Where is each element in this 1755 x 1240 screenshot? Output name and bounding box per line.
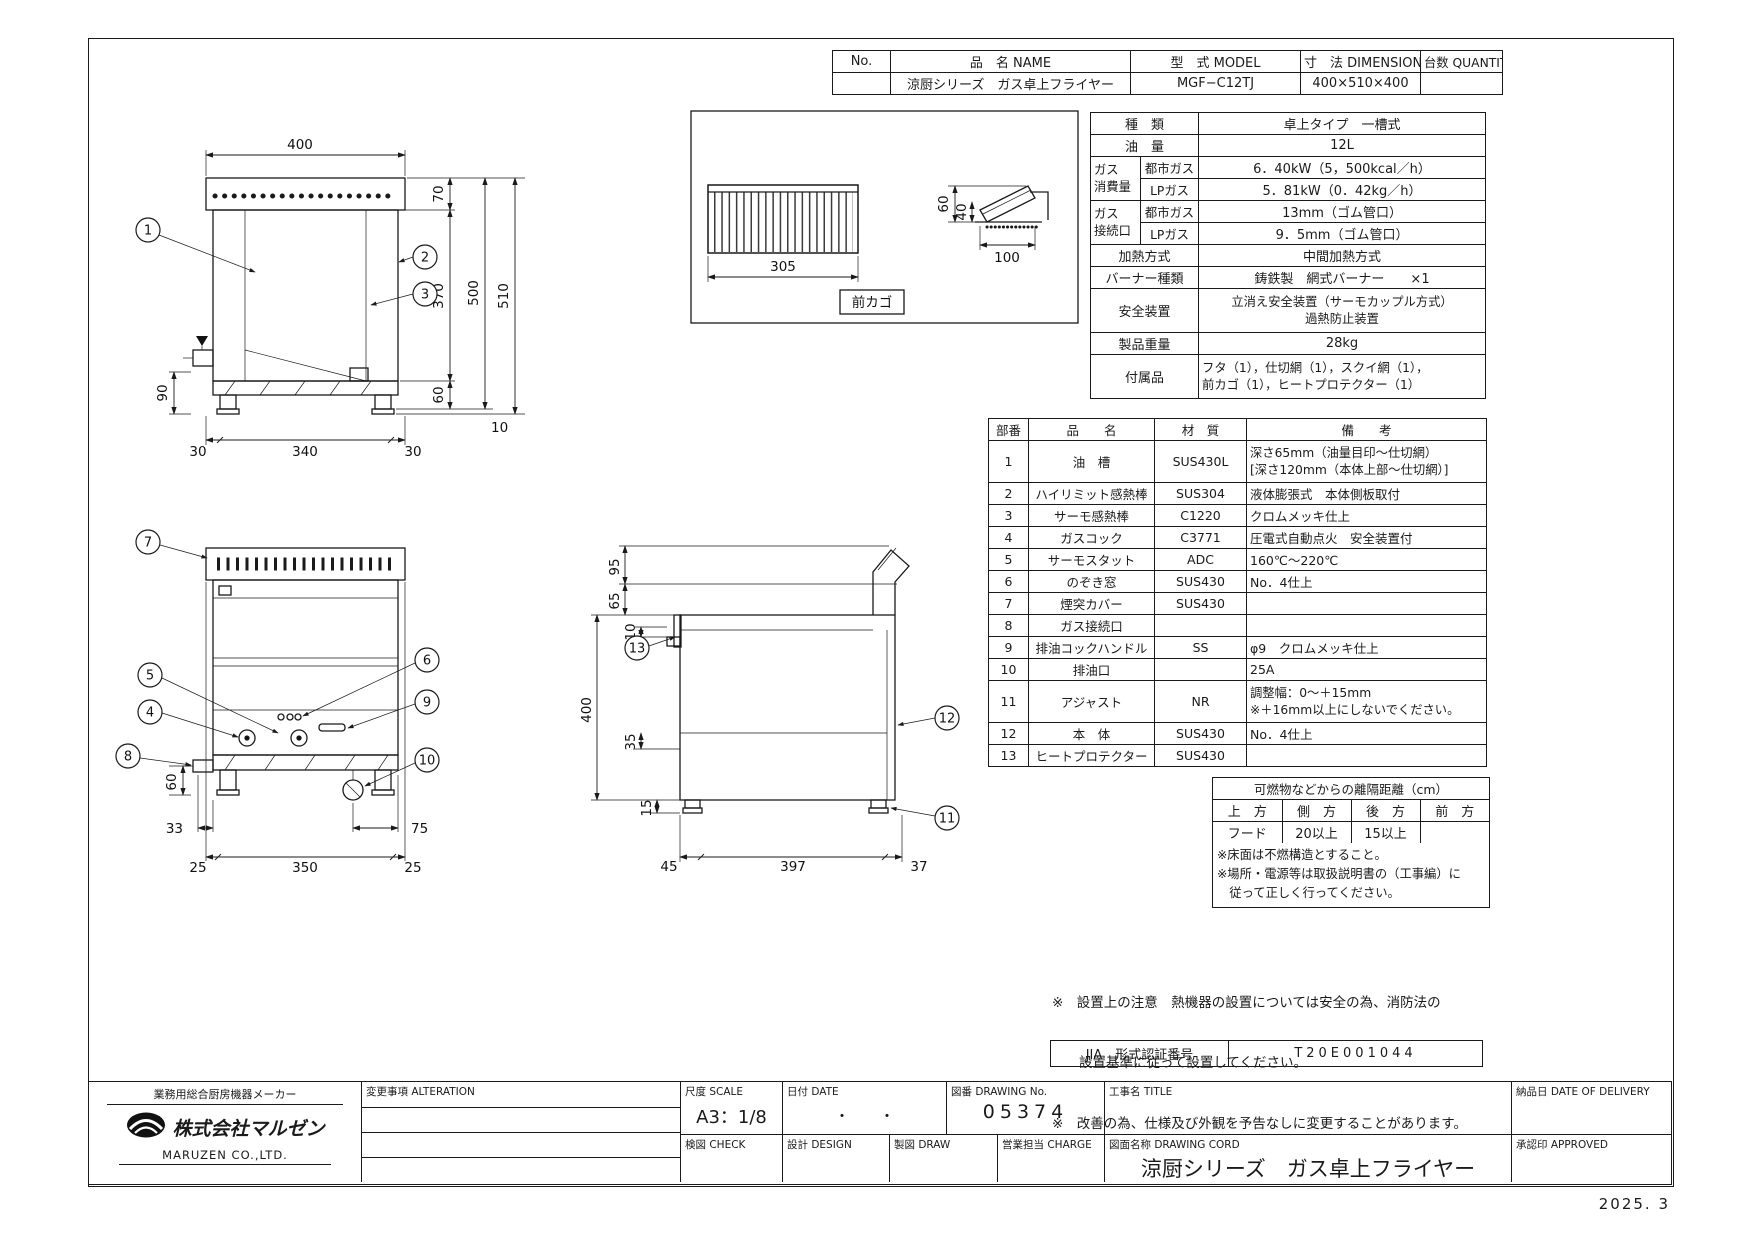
header-dim-label: 寸 法 DIMENSION bbox=[1301, 51, 1421, 73]
parts-no-header: 部番 bbox=[989, 419, 1029, 441]
parts-row: 8ガス接続口 bbox=[989, 615, 1487, 637]
date-label: 日付 DATE bbox=[783, 1082, 946, 1099]
project-title-cell: 工事名 TITLE bbox=[1104, 1082, 1511, 1134]
fryer-side-outline bbox=[667, 548, 909, 813]
spec-burner: 鋳鉄製 網式バーナー ×1 bbox=[1199, 267, 1486, 289]
side-extension-lines bbox=[591, 546, 902, 862]
dim-45: 45 bbox=[660, 859, 677, 875]
spec-lp-gas-label2: LPガス bbox=[1141, 223, 1199, 245]
drawing-sheet: No. 品 名 NAME 型 式 MODEL 寸 法 DIMENSION 台数 … bbox=[0, 0, 1755, 1240]
header-name-label: 品 名 NAME bbox=[891, 51, 1131, 73]
fryer-front2-details bbox=[183, 598, 398, 780]
dim-30-left: 30 bbox=[189, 444, 206, 460]
date-value: ・ ・ bbox=[783, 1105, 946, 1126]
spec-city-gas-label: 都市ガス bbox=[1141, 157, 1199, 179]
company-name: 株式会社マルゼン bbox=[172, 1114, 324, 1141]
draw-cell: 製図 DRAW bbox=[889, 1134, 997, 1182]
header-qty-value bbox=[1421, 73, 1503, 95]
clearance-side-value: 20以上 bbox=[1282, 822, 1351, 844]
parts-row: 2ハイリミット感熱棒SUS304液体膨張式 本体側板取付 bbox=[989, 483, 1487, 505]
spec-accessories: フタ（1），仕切網（1），スクイ網（1），前カゴ（1），ヒートプロテクター（1） bbox=[1199, 355, 1486, 399]
spec-consumption-label: ガス消費量 bbox=[1091, 157, 1141, 201]
parts-name-header: 品 名 bbox=[1029, 419, 1155, 441]
drawing-name-label: 図面名称 DRAWING CORD bbox=[1105, 1135, 1511, 1152]
project-title-label: 工事名 TITLE bbox=[1105, 1082, 1511, 1099]
dim-65: 65 bbox=[607, 592, 623, 609]
clearance-front-header: 前 方 bbox=[1420, 800, 1489, 822]
dim-60-left: 60 bbox=[164, 773, 180, 790]
header-qty-label: 台数 QUANTITY bbox=[1421, 51, 1503, 73]
parts-row: 3サーモ感熱棒C1220クロムメッキ仕上 bbox=[989, 505, 1487, 527]
front-view-drawing: 400 70 370 60 500 510 10 90 30 340 30 1 … bbox=[95, 50, 565, 470]
dim-305: 305 bbox=[770, 259, 796, 275]
dim-70: 70 bbox=[431, 185, 447, 202]
spec-city-gas-label2: 都市ガス bbox=[1141, 201, 1199, 223]
title-block: 業務用総合厨房機器メーカー 株式会社マルゼン MARUZEN CO.,LTD. … bbox=[88, 1081, 1672, 1185]
maruzen-logo-icon bbox=[125, 1110, 167, 1144]
check-cell: 検図 CHECK bbox=[680, 1134, 782, 1182]
spec-oil-label: 油 量 bbox=[1091, 135, 1199, 157]
spec-safety-label: 安全装置 bbox=[1091, 289, 1199, 333]
jia-value: T20E001044 bbox=[1229, 1041, 1483, 1067]
drawing-no-cell: 図番 DRAWING No. 05374 bbox=[946, 1082, 1104, 1134]
basket-dimension-lines bbox=[708, 186, 1035, 277]
parts-row: 1油 槽SUS430L 深さ65mm（油量目印～仕切網）[深さ120mm（本体上… bbox=[989, 441, 1487, 483]
callout-9: 9 bbox=[423, 696, 431, 711]
delivery-cell: 納品日 DATE OF DELIVERY bbox=[1511, 1082, 1671, 1134]
dim-35: 35 bbox=[623, 733, 639, 750]
spec-burner-label: バーナー種類 bbox=[1091, 267, 1199, 289]
dim-60: 60 bbox=[431, 386, 447, 403]
header-table: No. 品 名 NAME 型 式 MODEL 寸 法 DIMENSION 台数 … bbox=[832, 50, 1503, 95]
clearance-title: 可燃物などからの離隔距離（cm） bbox=[1213, 778, 1489, 800]
header-model-label: 型 式 MODEL bbox=[1131, 51, 1301, 73]
clearance-top-value: フード bbox=[1213, 822, 1282, 844]
dim-400: 400 bbox=[287, 137, 313, 153]
fryer-front-details bbox=[183, 210, 371, 395]
spec-weight: 28kg bbox=[1199, 333, 1486, 355]
spec-heating-label: 加熱方式 bbox=[1091, 245, 1199, 267]
parts-material-header: 材 質 bbox=[1155, 419, 1247, 441]
drawing-name-value: 涼厨シリーズ ガス卓上フライヤー bbox=[1105, 1153, 1511, 1183]
dim-340: 340 bbox=[292, 444, 318, 460]
fryer-front2-outline bbox=[193, 548, 405, 795]
spec-lp-gas-label: LPガス bbox=[1141, 179, 1199, 201]
callout-4: 4 bbox=[146, 706, 154, 721]
dim-40-basket: 40 bbox=[954, 203, 970, 220]
fryer-front-outline bbox=[193, 178, 405, 414]
callout-6: 6 bbox=[423, 654, 431, 669]
callout-2: 2 bbox=[421, 251, 429, 266]
scale-cell: 尺度 SCALE A3：1/8 bbox=[680, 1082, 782, 1134]
front2-dimension-lines bbox=[183, 766, 405, 860]
parts-row: 4ガスコックC3771圧電式自動点火 安全装置付 bbox=[989, 527, 1487, 549]
dim-15: 15 bbox=[639, 799, 655, 816]
dim-10: 10 bbox=[491, 420, 508, 436]
jia-label: JIA 形式認証番号 bbox=[1051, 1041, 1229, 1067]
dim-100-basket: 100 bbox=[994, 250, 1020, 266]
callout-5: 5 bbox=[146, 669, 154, 684]
spec-kind: 卓上タイプ 一槽式 bbox=[1199, 113, 1486, 135]
parts-row: 7煙突カバーSUS430 bbox=[989, 593, 1487, 615]
basket-extension-lines bbox=[708, 186, 1035, 282]
parts-row: 9排油コックハンドルSSφ9 クロムメッキ仕上 bbox=[989, 637, 1487, 659]
front2-extension-lines bbox=[169, 582, 405, 861]
gas-valve-marker bbox=[196, 336, 208, 346]
parts-row: 11アジャストNR 調整幅：0～＋15mm※＋16mm以上にしないでください。 bbox=[989, 681, 1487, 723]
maker-tagline: 業務用総合厨房機器メーカー bbox=[107, 1086, 343, 1105]
basket-side-profile bbox=[975, 186, 1048, 222]
alteration-section: 変更事項 ALTERATION bbox=[361, 1082, 680, 1182]
header-no-label: No. bbox=[833, 51, 891, 73]
clearance-rear-value: 15以上 bbox=[1351, 822, 1420, 844]
spec-heating: 中間加熱方式 bbox=[1199, 245, 1486, 267]
parts-row: 10排油口25A bbox=[989, 659, 1487, 681]
dim-500: 500 bbox=[466, 280, 482, 306]
control-knobs bbox=[239, 714, 363, 800]
fryer-side-details bbox=[680, 630, 887, 800]
dim-350: 350 bbox=[292, 860, 318, 876]
spec-connection-label: ガス接続口 bbox=[1091, 201, 1141, 245]
parts-remark-header: 備 考 bbox=[1247, 419, 1487, 441]
spec-connection-city: 13mm（ゴム管口） bbox=[1199, 201, 1486, 223]
header-name-value: 涼厨シリーズ ガス卓上フライヤー bbox=[891, 73, 1131, 95]
dim-33: 33 bbox=[166, 821, 183, 837]
basket-front bbox=[708, 185, 858, 253]
header-no-value bbox=[833, 73, 891, 95]
spec-safety: 立消え安全装置（サーモカップル方式）過熱防止装置 bbox=[1199, 289, 1486, 333]
spec-consumption-lp: 5．81kW（0．42kg／h） bbox=[1199, 179, 1486, 201]
spec-table: 種 類 卓上タイプ 一槽式 油 量 12L ガス消費量 都市ガス 6．40kW（… bbox=[1090, 112, 1486, 399]
callout-7: 7 bbox=[144, 536, 152, 551]
scale-label: 尺度 SCALE bbox=[681, 1082, 782, 1099]
dim-397: 397 bbox=[780, 859, 806, 875]
issue-date: 2025. 3 bbox=[1560, 1195, 1670, 1213]
date-cell: 日付 DATE ・ ・ bbox=[782, 1082, 946, 1134]
drawing-no-value: 05374 bbox=[947, 1101, 1104, 1123]
callout-11: 11 bbox=[939, 812, 956, 827]
drawing-no-label: 図番 DRAWING No. bbox=[947, 1082, 1104, 1099]
basket-view-drawing: 305 60 40 100 前カゴ bbox=[690, 110, 1080, 335]
callout-3: 3 bbox=[421, 288, 429, 303]
callout-12: 12 bbox=[939, 712, 956, 727]
spec-oil: 12L bbox=[1199, 135, 1486, 157]
header-dim-value: 400×510×400 bbox=[1301, 73, 1421, 95]
parts-row: 6のぞき窓SUS430No．4仕上 bbox=[989, 571, 1487, 593]
callout-1: 1 bbox=[144, 224, 152, 239]
dim-60-basket: 60 bbox=[936, 195, 952, 212]
clearance-box: 可燃物などからの離隔距離（cm） 上 方 側 方 後 方 前 方 フード 20以… bbox=[1212, 777, 1490, 908]
parts-row: 13ヒートプロテクターSUS430 bbox=[989, 745, 1487, 767]
side-view-drawing: 95 65 10 400 35 15 45 397 37 13 12 11 bbox=[575, 520, 1005, 885]
callout-10: 10 bbox=[419, 754, 436, 769]
spec-kind-label: 種 類 bbox=[1091, 113, 1199, 135]
spec-weight-label: 製品重量 bbox=[1091, 333, 1199, 355]
clearance-front-value bbox=[1420, 822, 1489, 844]
approved-cell: 承認印 APPROVED bbox=[1511, 1134, 1671, 1182]
delivery-label: 納品日 DATE OF DELIVERY bbox=[1512, 1082, 1671, 1099]
dim-510: 510 bbox=[496, 283, 512, 309]
draw-label: 製図 DRAW bbox=[890, 1135, 997, 1152]
alteration-label: 変更事項 ALTERATION bbox=[362, 1082, 680, 1099]
dim-400-side: 400 bbox=[579, 697, 595, 723]
parts-table: 部番 品 名 材 質 備 考 1油 槽SUS430L 深さ65mm（油量目印～仕… bbox=[988, 418, 1487, 767]
dim-25-right: 25 bbox=[404, 860, 421, 876]
approved-label: 承認印 APPROVED bbox=[1512, 1135, 1671, 1152]
clearance-side-header: 側 方 bbox=[1282, 800, 1351, 822]
clearance-top-header: 上 方 bbox=[1213, 800, 1282, 822]
dim-37: 37 bbox=[910, 859, 927, 875]
charge-cell: 営業担当 CHARGE bbox=[997, 1134, 1104, 1182]
front-view2-drawing: 60 33 75 25 350 25 7 5 4 8 6 9 10 bbox=[95, 520, 565, 885]
callout-8: 8 bbox=[124, 750, 132, 765]
dim-90: 90 bbox=[155, 384, 171, 401]
charge-label: 営業担当 CHARGE bbox=[998, 1135, 1104, 1152]
basket-label: 前カゴ bbox=[852, 294, 893, 311]
drawing-name-cell: 図面名称 DRAWING CORD 涼厨シリーズ ガス卓上フライヤー bbox=[1104, 1134, 1511, 1182]
design-cell: 設計 DESIGN bbox=[782, 1134, 889, 1182]
clearance-notes: ※床面は不燃構造とすること。 ※場所・電源等は取扱説明書の（工事編）に 従って正… bbox=[1213, 843, 1489, 907]
scale-value: A3：1/8 bbox=[681, 1103, 782, 1129]
callout-13: 13 bbox=[629, 642, 646, 657]
front-callouts: 1 2 3 bbox=[136, 218, 437, 306]
dim-25-left: 25 bbox=[189, 860, 206, 876]
company-name-en: MARUZEN CO.,LTD. bbox=[119, 1148, 331, 1165]
design-label: 設計 DESIGN bbox=[783, 1135, 889, 1152]
dim-30-right: 30 bbox=[404, 444, 421, 460]
basket-label-box: 前カゴ bbox=[840, 290, 904, 314]
parts-row: 12本 体SUS430No．4仕上 bbox=[989, 723, 1487, 745]
clearance-rear-header: 後 方 bbox=[1351, 800, 1420, 822]
dim-95: 95 bbox=[607, 558, 623, 575]
logo-section: 業務用総合厨房機器メーカー 株式会社マルゼン MARUZEN CO.,LTD. bbox=[89, 1082, 361, 1182]
spec-accessories-label: 付属品 bbox=[1091, 355, 1199, 399]
check-label: 検図 CHECK bbox=[681, 1135, 782, 1152]
basket-view-border bbox=[691, 111, 1078, 323]
spec-consumption-city: 6．40kW（5，500kcal／h） bbox=[1199, 157, 1486, 179]
jia-table: JIA 形式認証番号 T20E001044 bbox=[1050, 1040, 1483, 1067]
spec-connection-lp: 9．5mm（ゴム管口） bbox=[1199, 223, 1486, 245]
dim-75: 75 bbox=[411, 821, 428, 837]
header-model-value: MGF−C12TJ bbox=[1131, 73, 1301, 95]
parts-row: 5サーモスタットADC160℃～220℃ bbox=[989, 549, 1487, 571]
